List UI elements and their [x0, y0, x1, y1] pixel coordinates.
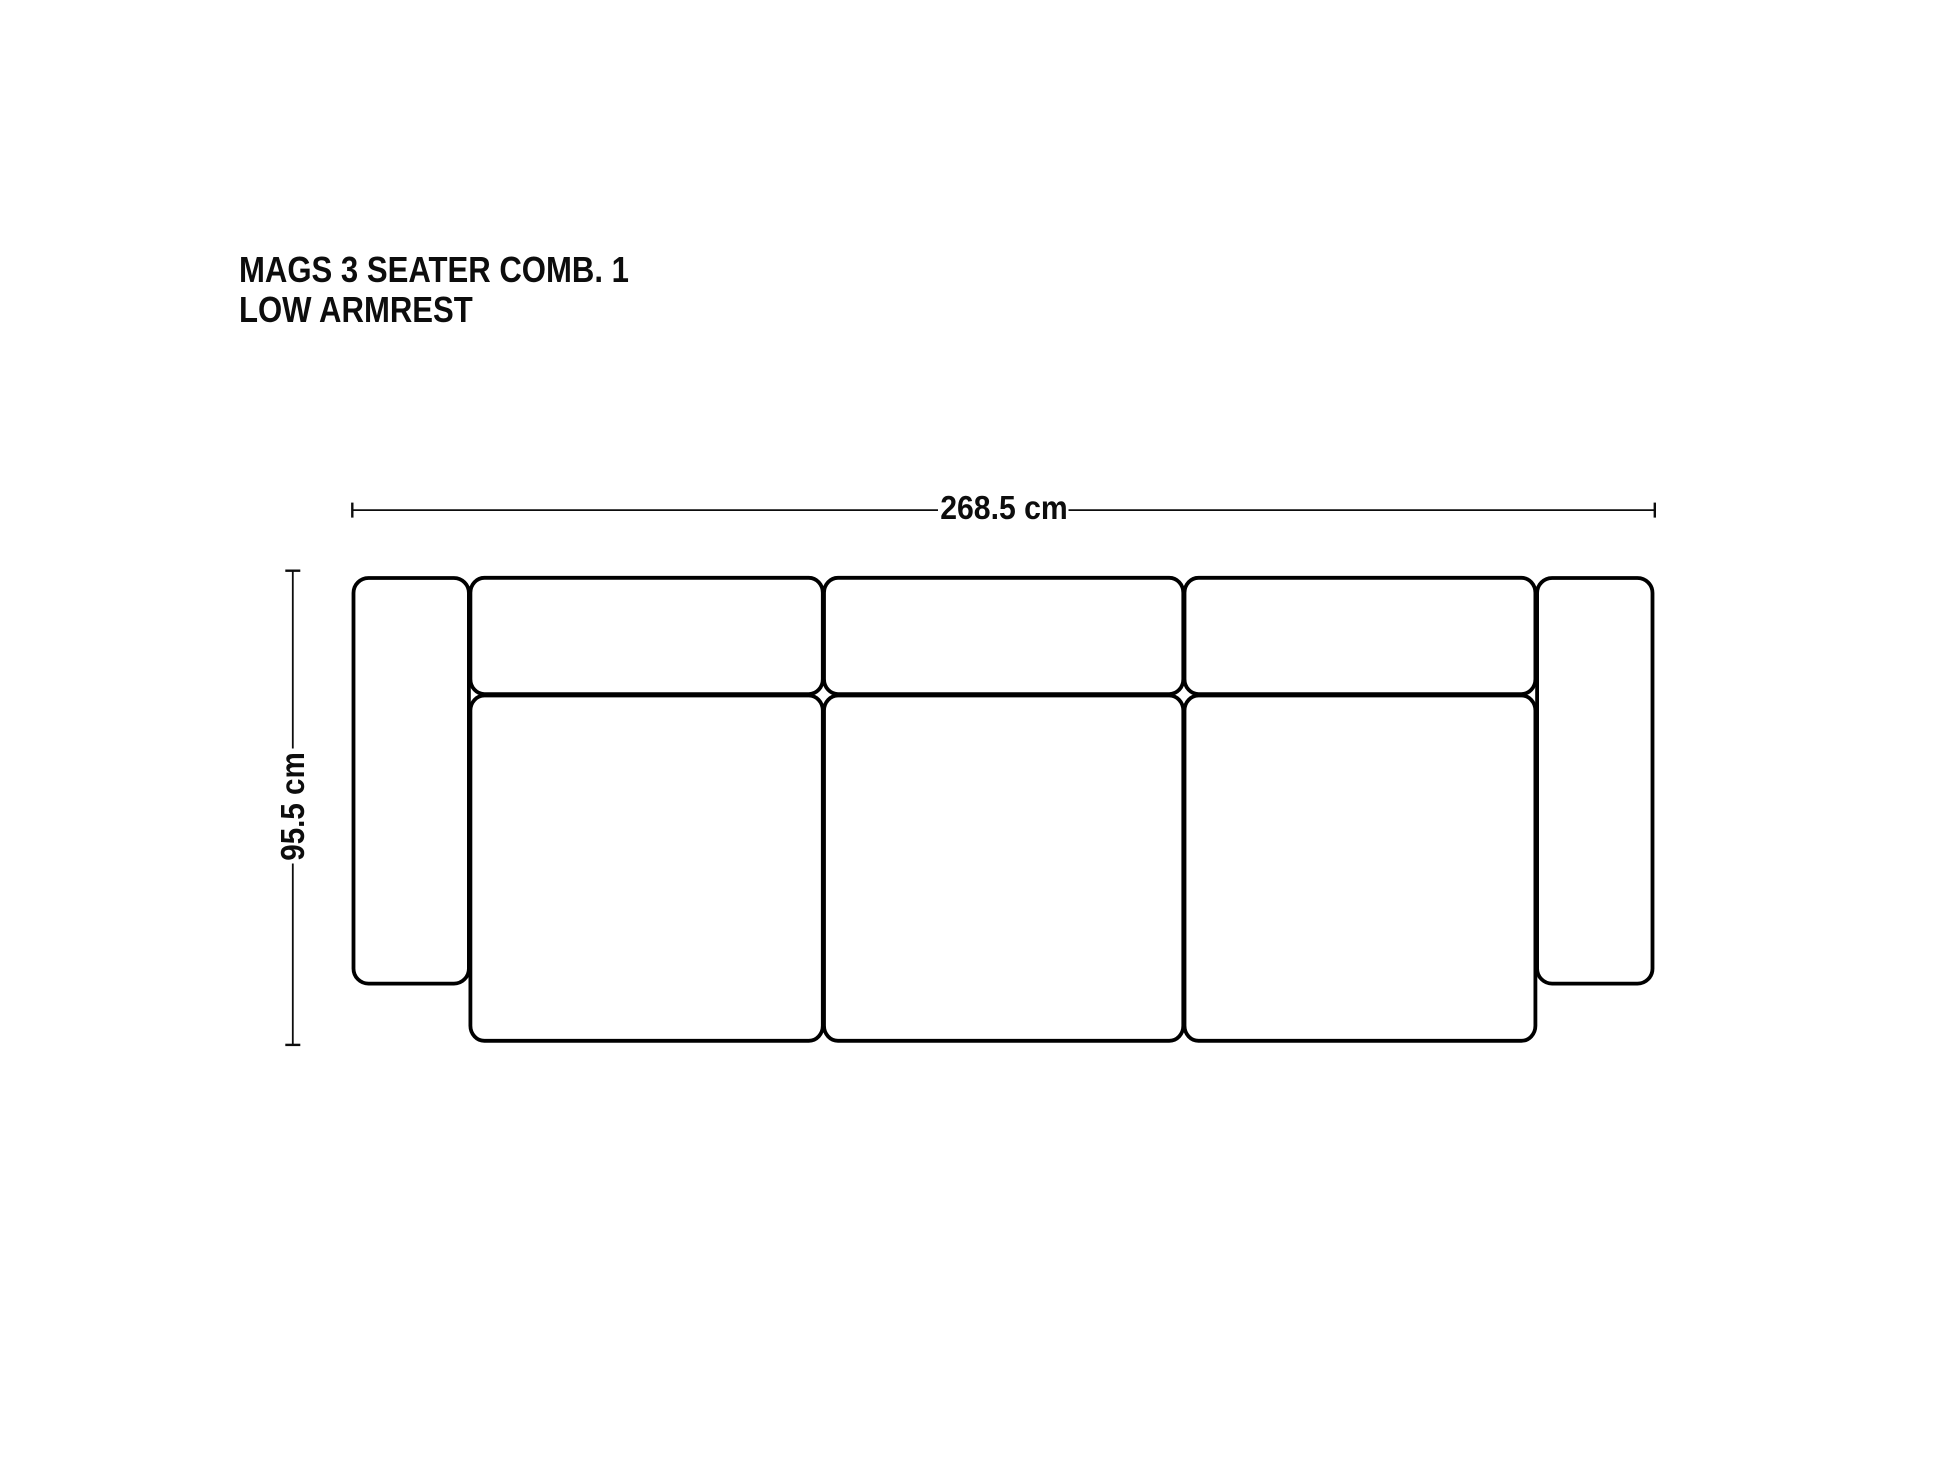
svg-text:95.5 cm: 95.5 cm — [274, 752, 311, 861]
svg-text:268.5 cm: 268.5 cm — [940, 489, 1068, 526]
